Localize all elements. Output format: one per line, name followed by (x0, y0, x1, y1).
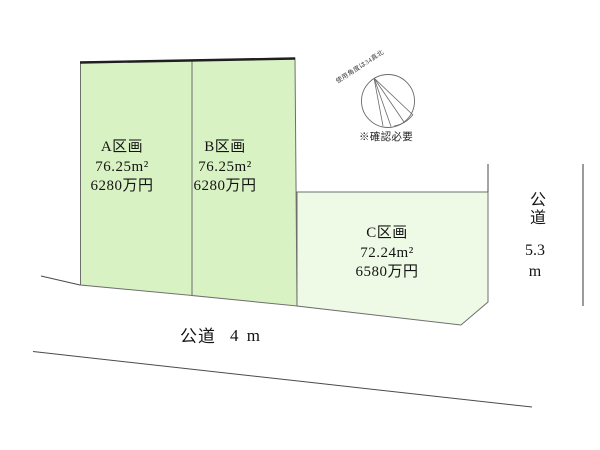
right-road-width-unit: m (517, 263, 553, 281)
site-plan-drawing (0, 0, 600, 450)
plot-c-area: 72.24m² (317, 244, 457, 264)
bottom-road-name: 公道 (180, 322, 216, 347)
compass-circle (362, 75, 415, 128)
plot-c-label: C区画 72.24m² 6580万円 (317, 224, 457, 283)
right-road-label: 公道 5.3 m (517, 191, 553, 281)
right-road-name: 公道 (523, 191, 547, 227)
plot-c-price: 6580万円 (317, 263, 457, 283)
plot-b-name: B区画 (155, 138, 295, 158)
site-plan: A区画 76.25m² 6280万円 B区画 76.25m² 6280万円 C区… (0, 0, 600, 450)
bottom-road-lower-edge (33, 352, 532, 408)
bottom-road-upper-edge (41, 276, 80, 285)
plot-c-name: C区画 (317, 224, 457, 244)
compass-ray-2 (374, 78, 391, 127)
plot-b-price: 6280万円 (155, 177, 295, 197)
bottom-road-width: 4 m (230, 326, 262, 346)
right-road-width-value: 5.3 (517, 242, 553, 260)
plot-b-label: B区画 76.25m² 6280万円 (155, 138, 295, 197)
compass-caption: ※確認必要 (359, 129, 413, 144)
bottom-road-label: 公道 4 m (180, 322, 262, 347)
compass-icon (362, 75, 415, 128)
plot-b-area: 76.25m² (155, 158, 295, 178)
